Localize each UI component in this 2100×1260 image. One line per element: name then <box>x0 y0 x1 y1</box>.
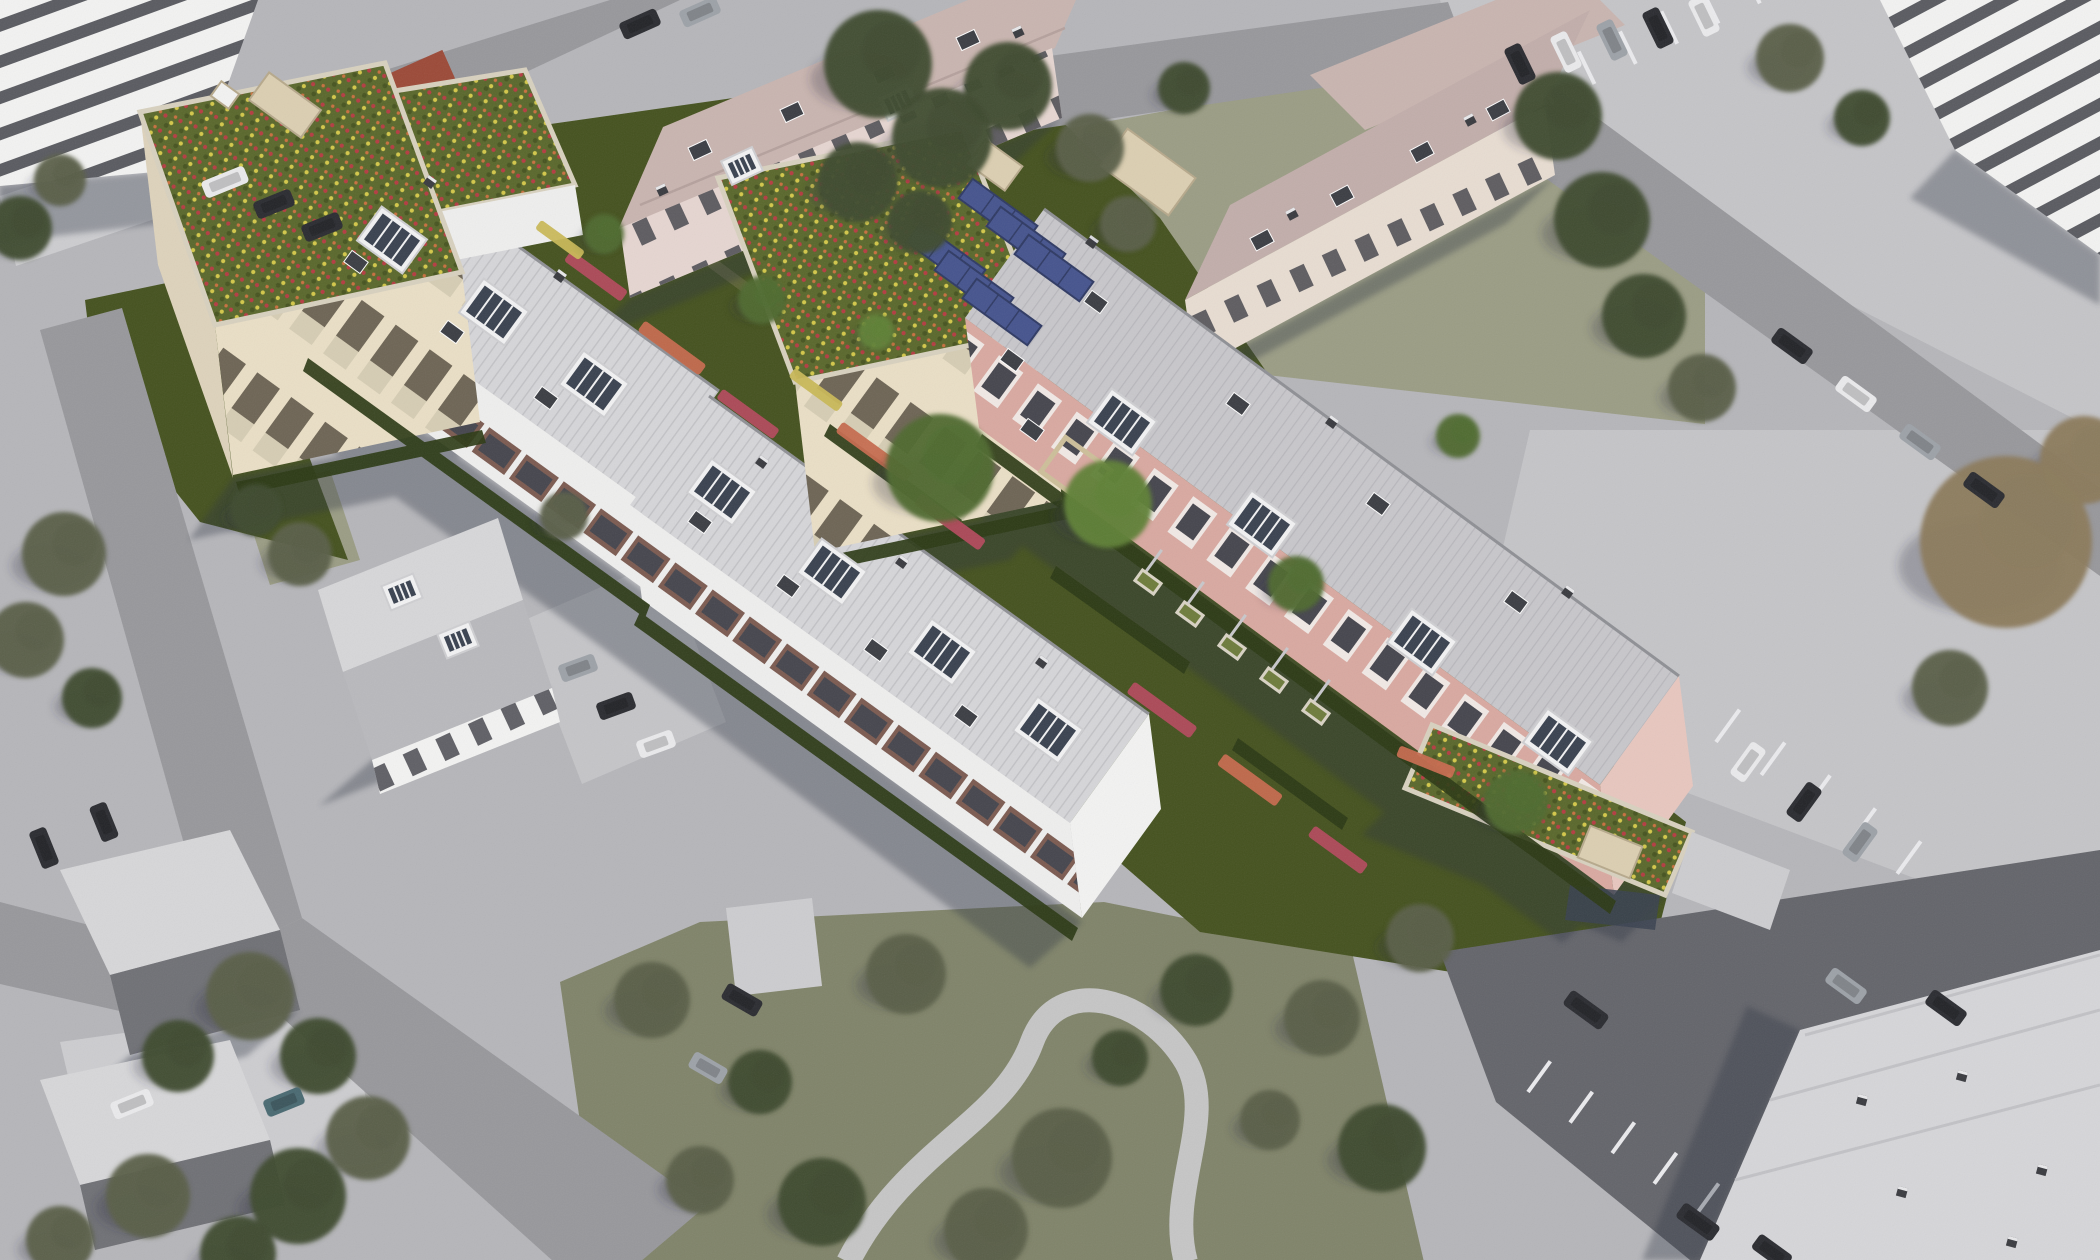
photo-grain-overlay <box>0 0 2100 1260</box>
aerial-scene <box>0 0 2100 1260</box>
aerial-photomontage <box>0 0 2100 1260</box>
